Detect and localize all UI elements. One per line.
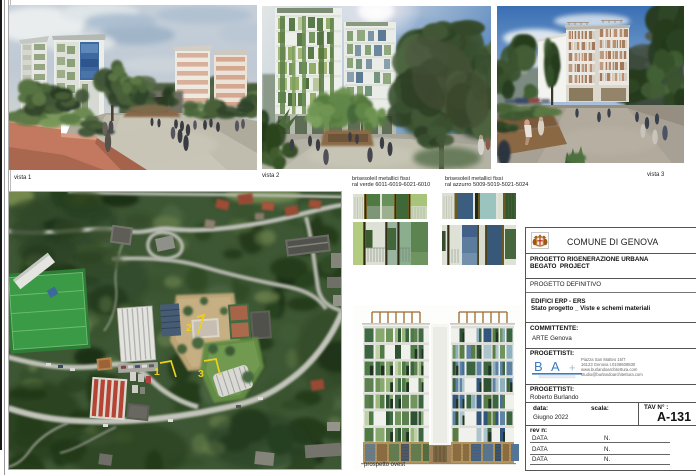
svg-text:1: 1 <box>154 366 160 378</box>
svg-text:2: 2 <box>186 322 192 334</box>
svg-text:A: A <box>551 359 560 374</box>
svg-text:+: + <box>569 362 575 374</box>
svg-text:B: B <box>534 359 543 374</box>
svg-text:3: 3 <box>198 368 204 380</box>
